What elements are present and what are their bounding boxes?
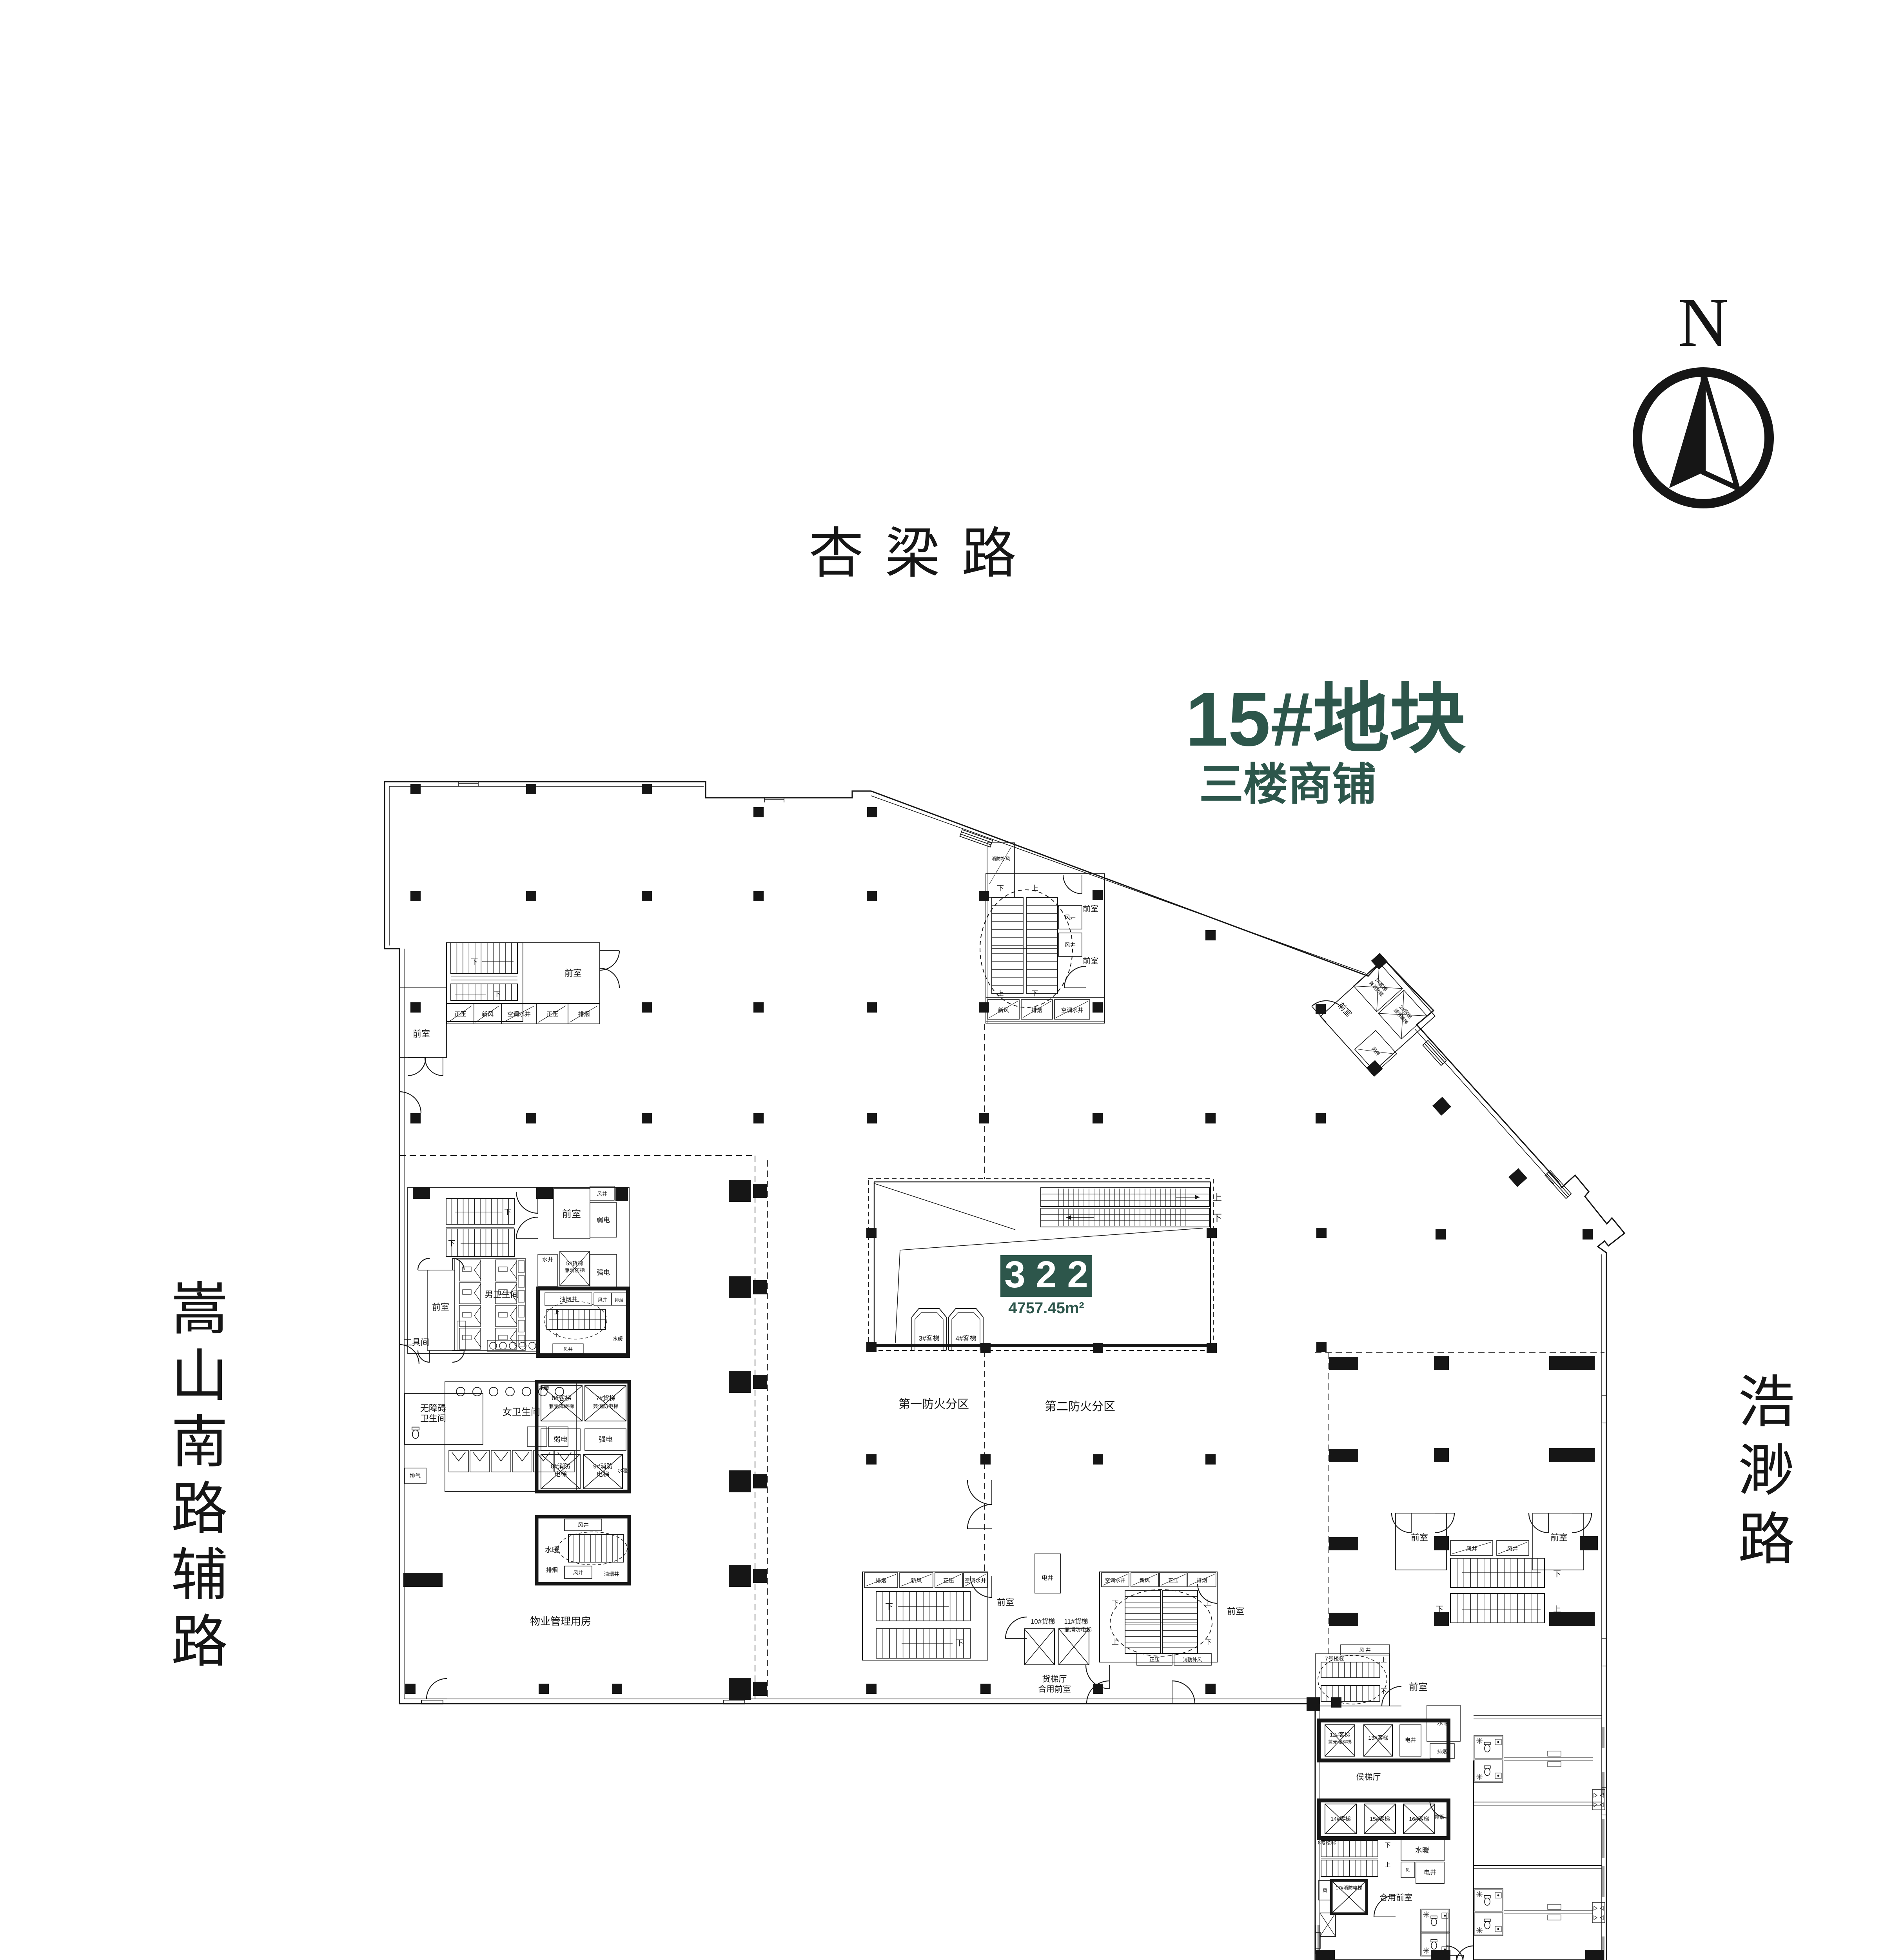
svg-text:嵩: 嵩 (171, 1278, 228, 1341)
svg-text:15#客梯: 15#客梯 (1370, 1816, 1390, 1822)
svg-text:前室: 前室 (413, 1029, 430, 1039)
svg-text:兼消防电梯: 兼消防电梯 (593, 1403, 618, 1409)
svg-text:前室: 前室 (1411, 1533, 1428, 1543)
svg-text:下: 下 (448, 1240, 455, 1247)
svg-text:卫生间: 卫生间 (420, 1414, 446, 1423)
svg-text:货梯厅: 货梯厅 (1042, 1675, 1067, 1684)
svg-text:下: 下 (1212, 1213, 1222, 1223)
svg-text:5#货梯: 5#货梯 (566, 1260, 583, 1267)
svg-text:水井: 水井 (542, 1256, 553, 1263)
svg-text:8号楼梯: 8号楼梯 (1318, 1840, 1336, 1846)
svg-text:南: 南 (171, 1410, 228, 1474)
svg-text:正压: 正压 (454, 1011, 466, 1018)
svg-text:排烟: 排烟 (1437, 1749, 1447, 1755)
svg-text:电梯: 电梯 (554, 1471, 567, 1478)
svg-text:男卫生间: 男卫生间 (485, 1290, 519, 1299)
svg-text:消防补风: 消防补风 (991, 856, 1010, 862)
svg-text:10#货梯: 10#货梯 (1031, 1618, 1055, 1625)
svg-text:兼消防梯: 兼消防梯 (564, 1267, 585, 1273)
svg-text:风井: 风井 (597, 1191, 607, 1197)
svg-text:排烟: 排烟 (615, 1297, 623, 1303)
svg-text:下: 下 (494, 990, 501, 998)
svg-text:油烟井: 油烟井 (604, 1571, 619, 1577)
svg-text:13#客梯: 13#客梯 (1368, 1735, 1388, 1741)
svg-text:新风: 新风 (911, 1577, 922, 1584)
svg-text:浩: 浩 (1738, 1370, 1795, 1434)
svg-text:风: 风 (1405, 1867, 1410, 1873)
svg-text:8#消防: 8#消防 (551, 1463, 570, 1470)
svg-text:3#客梯: 3#客梯 (919, 1335, 940, 1342)
svg-text:路: 路 (1738, 1508, 1795, 1571)
svg-text:弱电: 弱电 (597, 1216, 610, 1224)
svg-text:女卫生间: 女卫生间 (503, 1407, 540, 1417)
svg-text:风 井: 风 井 (1359, 1647, 1371, 1653)
svg-text:三楼商铺: 三楼商铺 (1199, 760, 1376, 809)
svg-text:电井: 电井 (1042, 1575, 1053, 1581)
svg-text:渺: 渺 (1738, 1439, 1795, 1503)
svg-text:16#客梯: 16#客梯 (1409, 1816, 1429, 1822)
svg-text:上: 上 (1381, 1657, 1387, 1664)
svg-text:下: 下 (1436, 1605, 1443, 1614)
svg-text:正压: 正压 (943, 1577, 954, 1584)
svg-text:排烟: 排烟 (546, 1567, 558, 1573)
svg-text:4#客梯: 4#客梯 (956, 1335, 976, 1342)
svg-text:前室: 前室 (432, 1302, 449, 1312)
svg-text:兼无障碍梯: 兼无障碍梯 (548, 1403, 574, 1409)
svg-text:新风: 新风 (482, 1011, 494, 1018)
svg-text:路: 路 (171, 1477, 228, 1541)
svg-text:兼无障碍梯: 兼无障碍梯 (1328, 1739, 1352, 1745)
svg-text:上: 上 (997, 990, 1004, 997)
svg-text:下: 下 (504, 1208, 511, 1216)
svg-text:空调水井: 空调水井 (1061, 1007, 1083, 1013)
svg-text:下: 下 (997, 884, 1004, 892)
svg-text:风井: 风井 (578, 1522, 589, 1528)
svg-text:消防补风: 消防补风 (1183, 1657, 1202, 1662)
svg-text:4757.45m²: 4757.45m² (1008, 1299, 1084, 1317)
svg-text:下: 下 (1553, 1570, 1561, 1579)
svg-text:山: 山 (171, 1344, 228, 1408)
svg-text:前室: 前室 (1083, 956, 1098, 965)
svg-text:7号楼梯: 7号楼梯 (1325, 1655, 1345, 1662)
svg-text:正压: 正压 (1168, 1577, 1178, 1583)
svg-text:侯梯厅: 侯梯厅 (1356, 1773, 1381, 1782)
svg-text:第二防火分区: 第二防火分区 (1045, 1400, 1115, 1413)
svg-text:下: 下 (956, 1639, 964, 1648)
svg-text:12#客梯: 12#客梯 (1330, 1731, 1350, 1738)
svg-text:排烟: 排烟 (1031, 1007, 1042, 1013)
svg-text:空调水井: 空调水井 (1105, 1577, 1125, 1583)
svg-text:空调水井: 空调水井 (507, 1011, 531, 1018)
svg-text:前室: 前室 (1409, 1682, 1428, 1693)
svg-text:前室: 前室 (562, 1209, 581, 1220)
svg-text:兼消防电梯: 兼消防电梯 (1064, 1626, 1092, 1633)
svg-text:合用前室: 合用前室 (1038, 1685, 1071, 1694)
svg-text:上: 上 (1212, 1192, 1222, 1203)
svg-text:9#消防: 9#消防 (593, 1463, 613, 1470)
svg-text:14#客梯: 14#客梯 (1330, 1816, 1350, 1822)
svg-text:水暖: 水暖 (545, 1546, 559, 1554)
svg-text:无障碍: 无障碍 (420, 1403, 446, 1413)
svg-text:电梯: 电梯 (597, 1471, 609, 1478)
svg-text:物业管理用房: 物业管理用房 (530, 1615, 591, 1627)
svg-text:6#客梯: 6#客梯 (552, 1395, 571, 1402)
svg-text:风井: 风井 (573, 1570, 583, 1575)
svg-text:下: 下 (470, 958, 478, 966)
svg-text:水暖: 水暖 (613, 1336, 623, 1342)
svg-text:强电: 强电 (597, 1269, 610, 1276)
svg-text:路: 路 (171, 1610, 228, 1673)
svg-text:下: 下 (554, 1332, 559, 1338)
svg-text:风井: 风井 (598, 1297, 607, 1303)
svg-text:15#地块: 15#地块 (1185, 677, 1466, 762)
svg-text:上: 上 (1031, 884, 1038, 892)
svg-text:风井: 风井 (1507, 1546, 1518, 1552)
svg-text:新风: 新风 (1140, 1577, 1150, 1583)
svg-text:新风: 新风 (998, 1007, 1009, 1013)
svg-text:下: 下 (1205, 1638, 1212, 1646)
svg-text:下: 下 (885, 1602, 893, 1611)
svg-text:11#货梯: 11#货梯 (1064, 1618, 1088, 1625)
svg-text:前室: 前室 (997, 1597, 1014, 1607)
svg-text:前室: 前室 (564, 968, 582, 978)
svg-text:前室: 前室 (1550, 1533, 1568, 1543)
svg-text:下: 下 (1112, 1599, 1119, 1607)
svg-text:3 2 2: 3 2 2 (1004, 1254, 1088, 1296)
svg-text:弱电: 弱电 (554, 1436, 568, 1443)
svg-text:正压: 正压 (1149, 1657, 1160, 1662)
svg-text:排气: 排气 (410, 1473, 421, 1479)
svg-text:杏 梁 路: 杏 梁 路 (809, 523, 1020, 584)
svg-text:电井: 电井 (1424, 1869, 1436, 1876)
svg-text:水暖: 水暖 (539, 1385, 549, 1391)
svg-text:下: 下 (1385, 1842, 1390, 1849)
svg-text:7#货梯: 7#货梯 (596, 1395, 615, 1402)
svg-text:正压: 正压 (546, 1011, 558, 1018)
svg-text:下: 下 (1032, 990, 1038, 997)
svg-text:排烟: 排烟 (578, 1011, 590, 1018)
svg-text:N: N (1678, 283, 1729, 361)
svg-text:风: 风 (1323, 1888, 1327, 1893)
svg-text:风井: 风井 (1466, 1546, 1477, 1552)
svg-text:前室: 前室 (1227, 1606, 1244, 1616)
svg-text:水暖: 水暖 (617, 1468, 628, 1474)
svg-text:排烟: 排烟 (876, 1577, 887, 1584)
svg-text:上: 上 (554, 1309, 559, 1315)
svg-text:水暖: 水暖 (1415, 1846, 1429, 1854)
svg-text:风井: 风井 (563, 1347, 573, 1352)
svg-text:排烟: 排烟 (1197, 1577, 1207, 1583)
svg-text:风井: 风井 (1065, 942, 1076, 948)
svg-text:上: 上 (1553, 1605, 1561, 1614)
svg-text:17#消防电梯: 17#消防电梯 (1336, 1885, 1362, 1891)
svg-text:第一防火分区: 第一防火分区 (898, 1398, 969, 1411)
svg-text:空调水井: 空调水井 (964, 1577, 986, 1584)
svg-text:上: 上 (1112, 1638, 1119, 1646)
svg-text:辅: 辅 (171, 1543, 228, 1607)
svg-text:上: 上 (1205, 1599, 1212, 1607)
svg-text:电井: 电井 (1405, 1737, 1416, 1743)
svg-text:强电: 强电 (599, 1436, 613, 1443)
svg-text:前室: 前室 (1083, 904, 1098, 913)
svg-text:风井: 风井 (1065, 914, 1076, 920)
svg-text:上: 上 (1385, 1862, 1390, 1868)
